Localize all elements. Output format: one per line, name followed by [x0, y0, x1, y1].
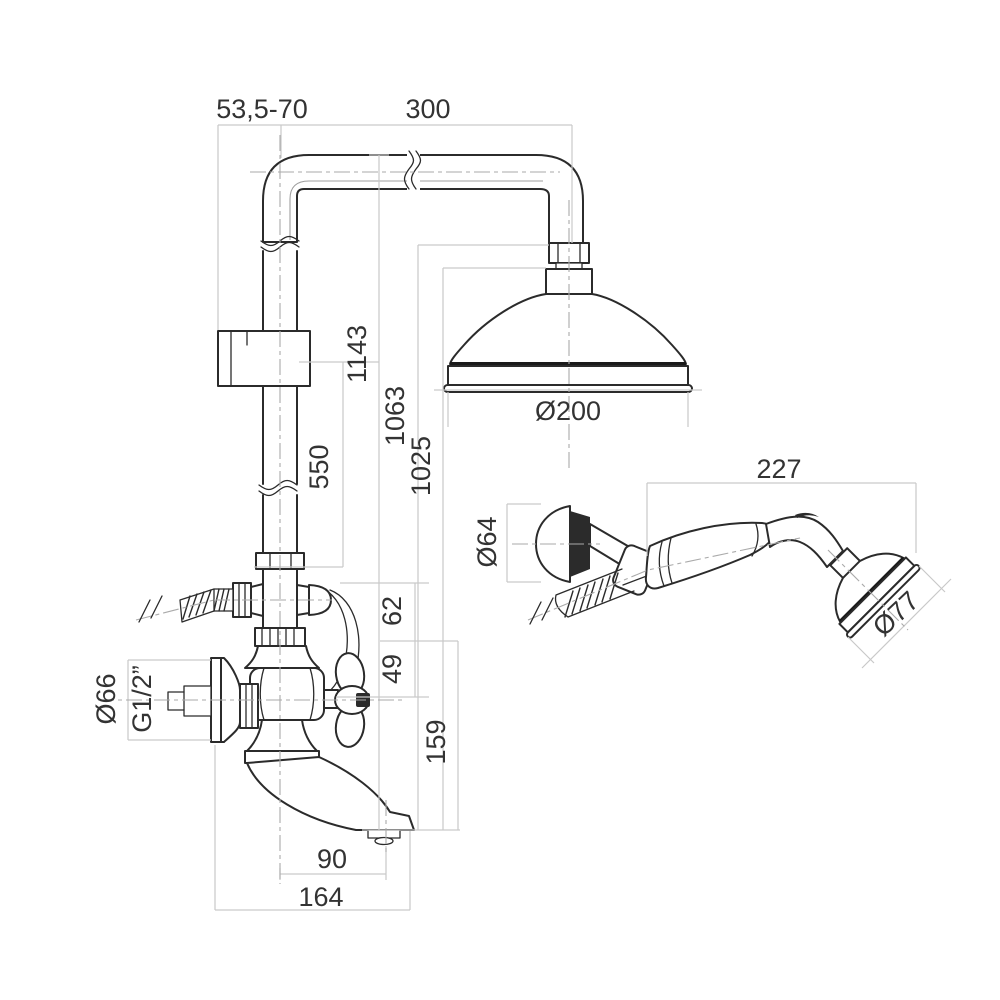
dim-62: 62: [377, 596, 407, 626]
dim-159: 159: [421, 719, 451, 764]
dim-49: 49: [377, 654, 407, 684]
wall-bracket: [218, 331, 310, 386]
dim-flange-diameter: Ø66: [91, 673, 121, 724]
dim-thread-size: G1/2”: [127, 665, 157, 733]
dim-handshower-length: 227: [756, 454, 801, 484]
dimension-lines: [128, 125, 951, 910]
hand-shower-grip: [646, 513, 843, 589]
centerlines: [98, 135, 908, 884]
dim-holder-diameter: Ø64: [472, 516, 502, 567]
hand-shower-view: [536, 506, 921, 639]
dim-arm-reach: 300: [405, 94, 450, 124]
dim-total-reach: 164: [298, 882, 343, 912]
dim-head-diameter: Ø200: [535, 396, 601, 426]
drawing-canvas: 53,5-70 300 1143 1063 1025 550 62 49 159…: [0, 0, 1000, 1000]
spout-aerator: [375, 838, 393, 845]
hose-outlet-tee: [214, 553, 331, 628]
dim-550: 550: [304, 444, 334, 489]
dim-height-1143: 1143: [342, 325, 372, 383]
overhead-shower-head: [444, 243, 692, 392]
tub-spout: [245, 720, 414, 845]
dim-wall-offset: 53,5-70: [216, 94, 308, 124]
dim-height-1025: 1025: [406, 436, 436, 496]
dim-spout-reach: 90: [317, 844, 347, 874]
technical-drawing: 53,5-70 300 1143 1063 1025 550 62 49 159…: [0, 0, 1000, 1000]
dimension-labels: 53,5-70 300 1143 1063 1025 550 62 49 159…: [91, 94, 925, 912]
shower-hose-spiral: [180, 589, 214, 622]
